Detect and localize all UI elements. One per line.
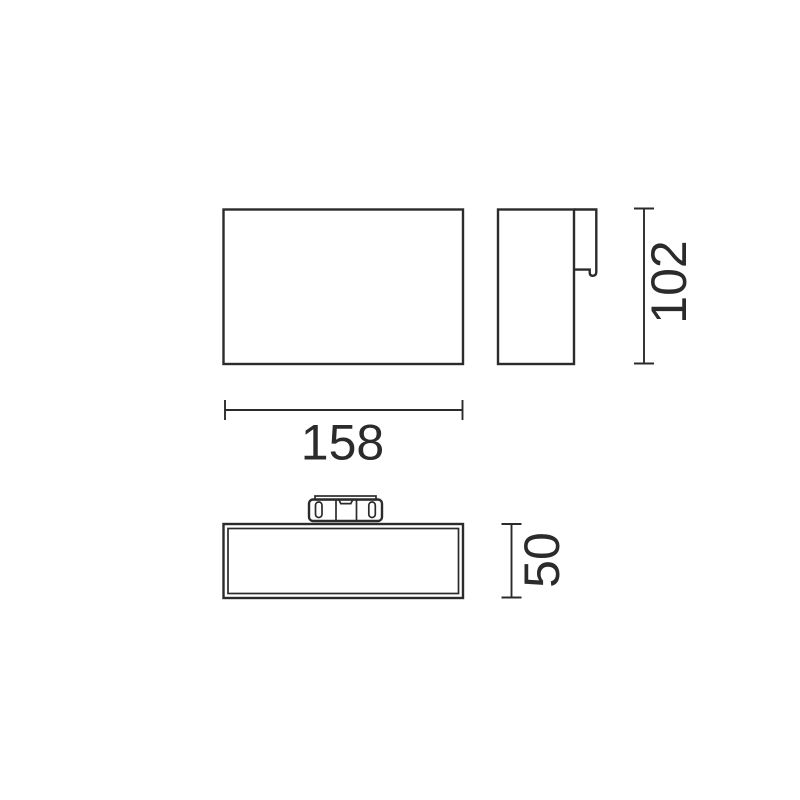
drawing-canvas: 158 102 50 — [0, 0, 800, 800]
clip-latch-left — [316, 502, 323, 518]
bottom-view — [224, 496, 464, 598]
side-view — [498, 210, 596, 365]
clip-latch-right — [369, 502, 376, 518]
bottom-view-inner-outline — [228, 529, 459, 594]
front-view — [224, 210, 464, 365]
width-dimension-label: 158 — [301, 415, 384, 471]
side-view-mount-hook — [574, 210, 596, 276]
height-dimension: 102 — [634, 209, 697, 364]
depth-dimension-label: 50 — [514, 532, 570, 588]
side-view-body-outline — [498, 210, 574, 365]
mounting-clip — [309, 496, 382, 521]
height-dimension-label: 102 — [641, 240, 697, 323]
depth-dimension: 50 — [502, 524, 571, 598]
width-dimension: 158 — [225, 400, 463, 471]
front-view-outline — [224, 210, 464, 365]
bottom-view-outer-outline — [224, 524, 464, 598]
dimension-drawing: 158 102 50 — [0, 0, 800, 800]
